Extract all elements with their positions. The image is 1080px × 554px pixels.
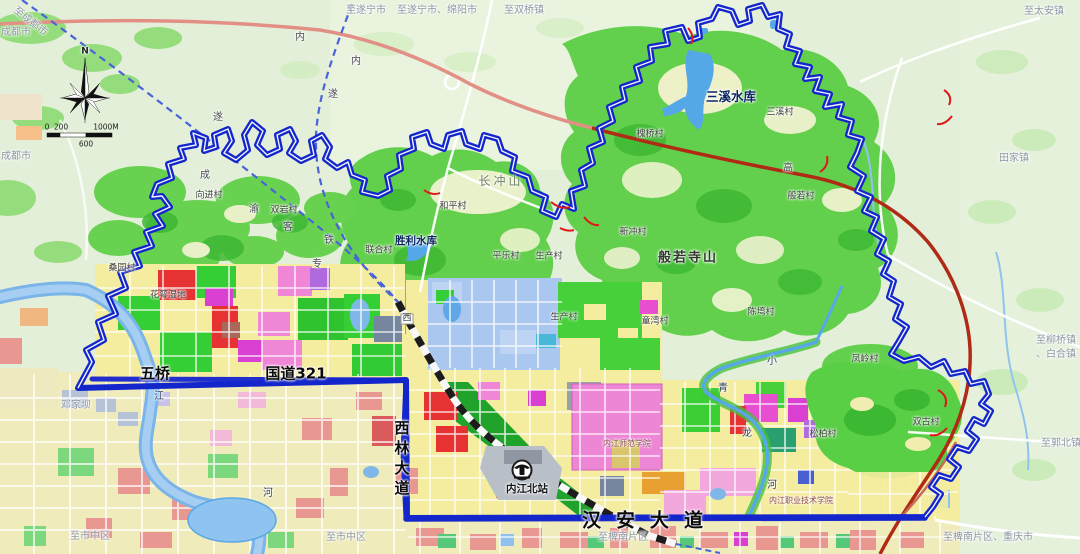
- map-graphics: [0, 0, 1080, 554]
- scale-bar: [47, 133, 112, 137]
- planning-map-canvas: 至成都市成都市成都市至遂宁市至遂宁市、绵阳市至双桥镇至太安镇至柳桥镇、白合镇至郭…: [0, 0, 1080, 554]
- pond: [188, 498, 276, 542]
